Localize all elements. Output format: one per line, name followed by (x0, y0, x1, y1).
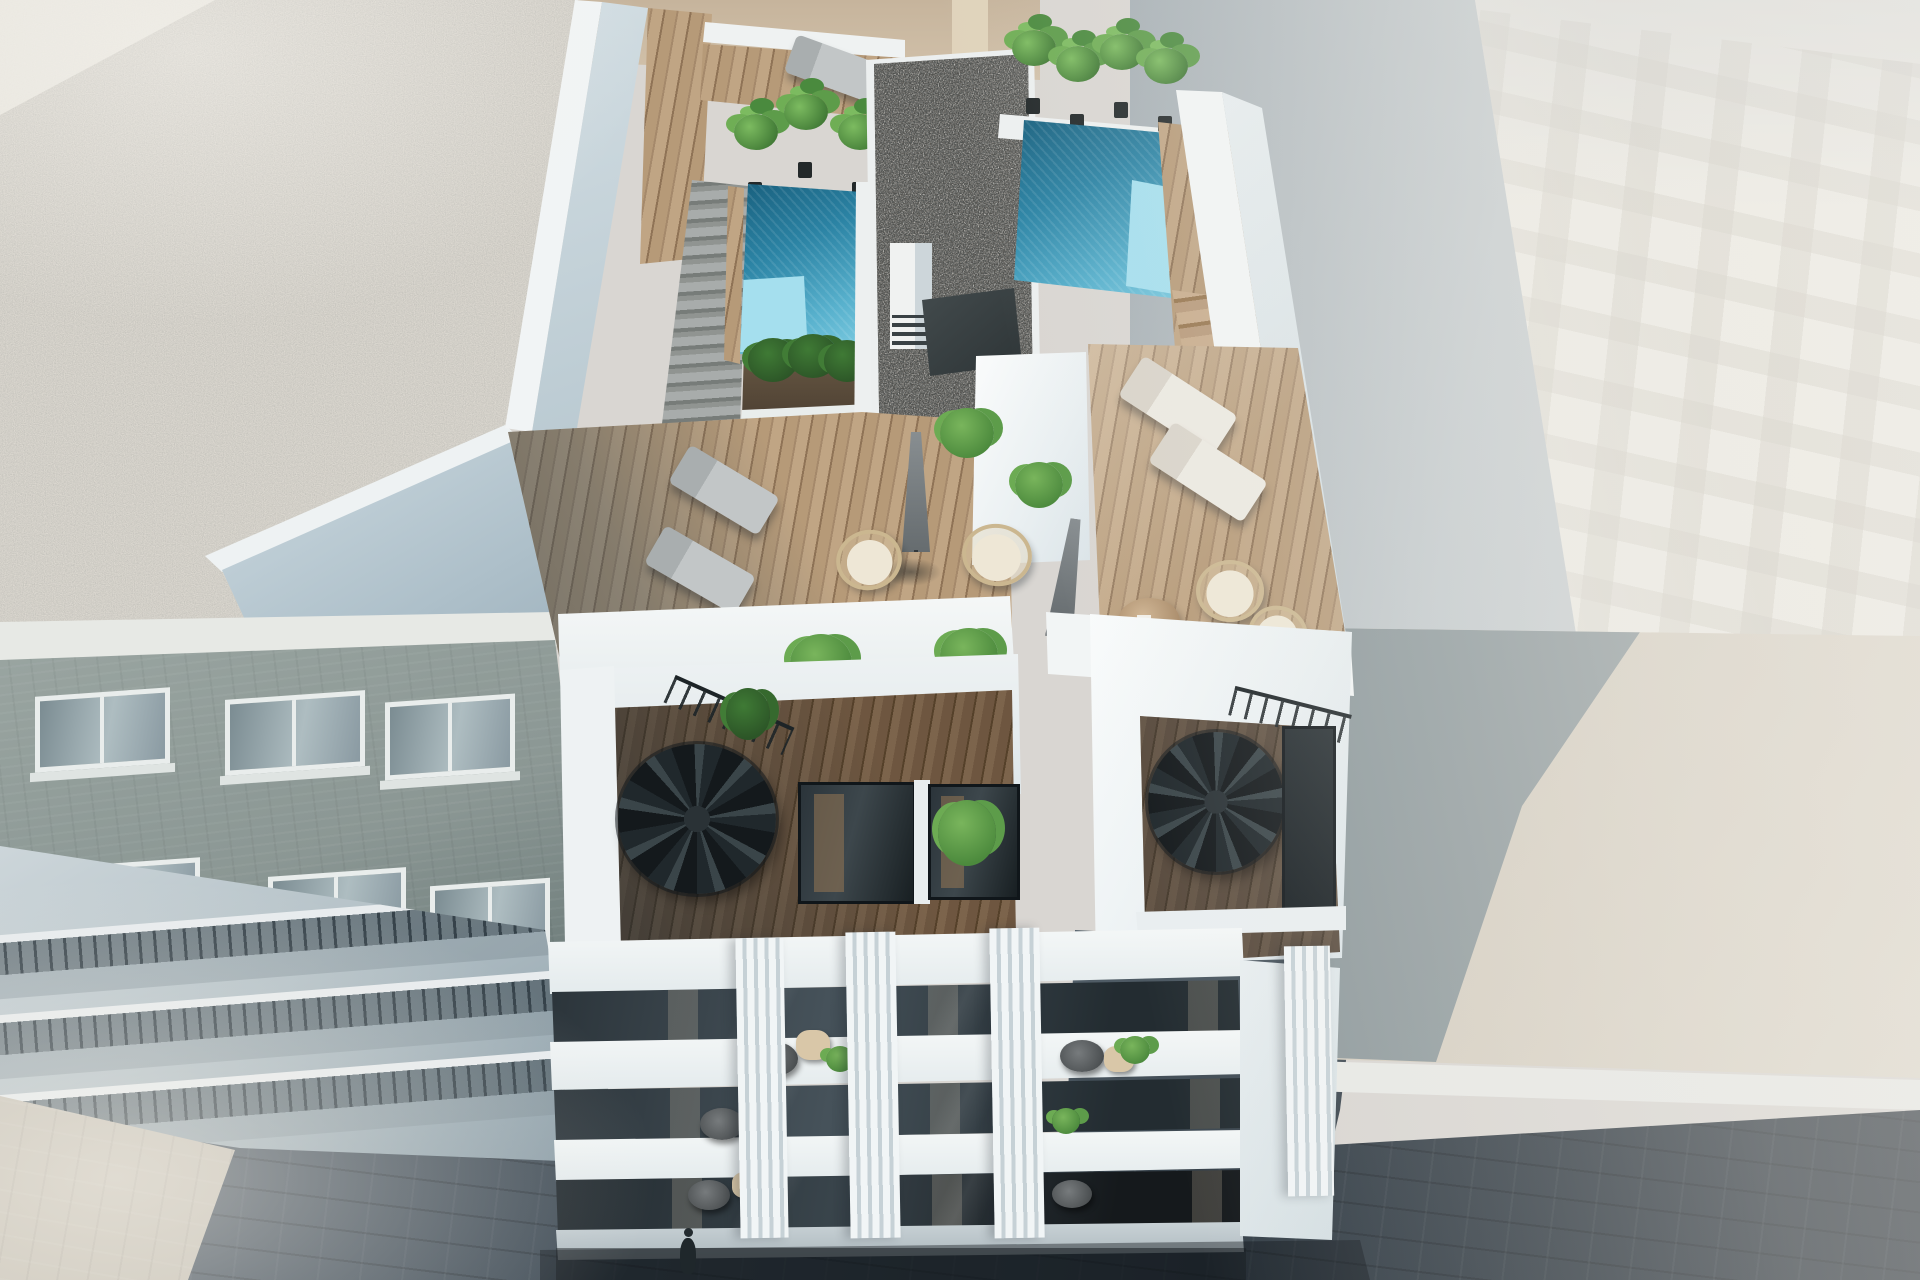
render-scene (0, 0, 1920, 1280)
potted-palm (940, 408, 994, 458)
facade-fins (735, 938, 788, 1239)
window (385, 693, 515, 780)
window (35, 687, 170, 772)
terrace-plant (726, 688, 770, 740)
balcony-table (1060, 1040, 1104, 1072)
balcony-table (1052, 1180, 1092, 1208)
balcony-plant (1052, 1108, 1080, 1134)
balcony-table (700, 1108, 744, 1140)
balcony-table (688, 1180, 730, 1210)
glass-door (798, 782, 916, 904)
facade-fins (989, 928, 1044, 1239)
facade-fins (845, 932, 900, 1239)
facade-fins (1284, 946, 1334, 1197)
pedestrian-head (684, 1228, 693, 1237)
potted-palm (1015, 462, 1063, 508)
terrace-plant (938, 800, 996, 866)
window (225, 690, 365, 776)
balcony-plant (1120, 1036, 1150, 1064)
curtain (814, 794, 843, 891)
rattan-chair (1196, 560, 1264, 622)
glass-door (1282, 726, 1336, 916)
spiral-staircase (1148, 732, 1284, 872)
balcony-chair (796, 1030, 830, 1060)
pedestrian (680, 1238, 696, 1274)
spiral-staircase (618, 744, 776, 894)
